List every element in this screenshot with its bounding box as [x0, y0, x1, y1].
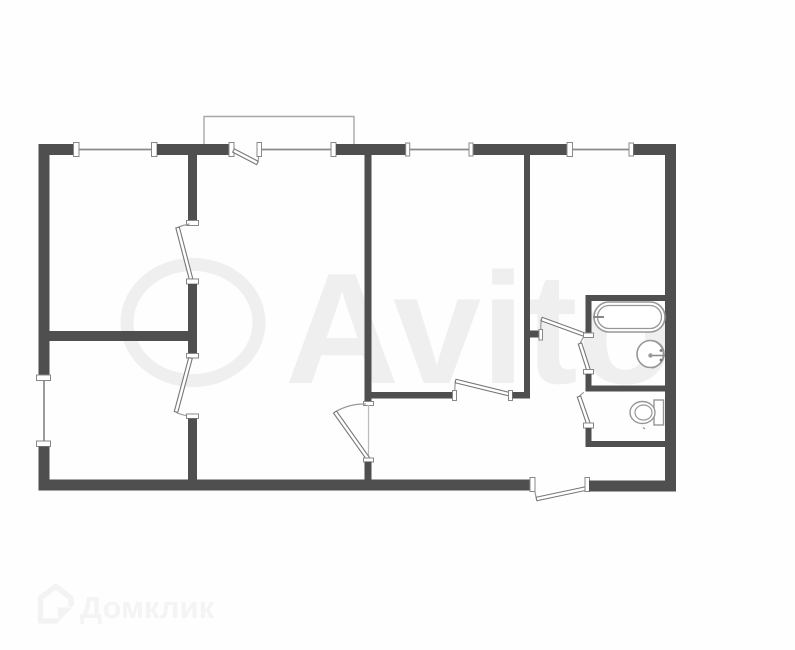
svg-text:Домклик: Домклик [80, 590, 215, 625]
